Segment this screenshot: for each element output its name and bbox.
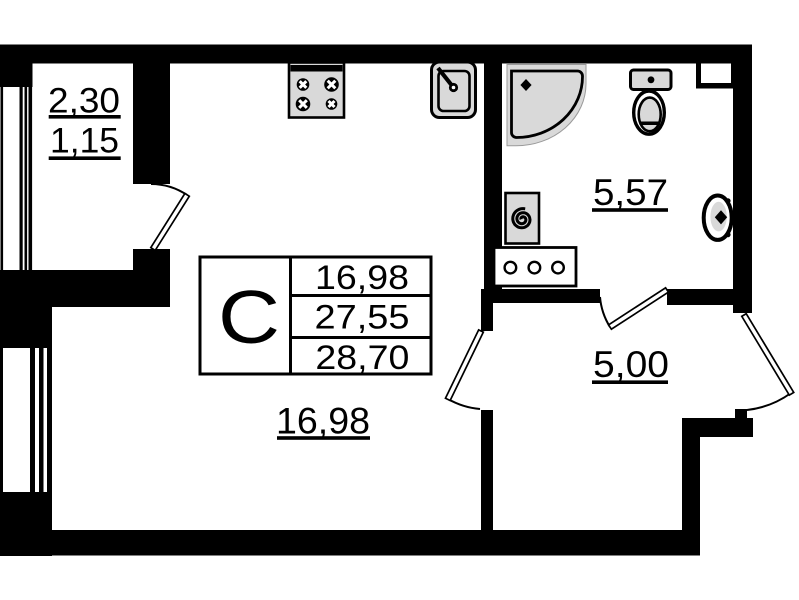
svg-text:16,98: 16,98 (315, 259, 409, 297)
svg-text:28,70: 28,70 (315, 339, 409, 377)
svg-text:2,30: 2,30 (48, 82, 120, 121)
svg-text:C: C (218, 275, 280, 359)
svg-text:5,00: 5,00 (593, 344, 669, 385)
svg-text:16,98: 16,98 (276, 400, 370, 441)
svg-text:27,55: 27,55 (315, 298, 410, 336)
svg-text:1,15: 1,15 (50, 122, 119, 161)
svg-text:5,57: 5,57 (593, 172, 668, 213)
